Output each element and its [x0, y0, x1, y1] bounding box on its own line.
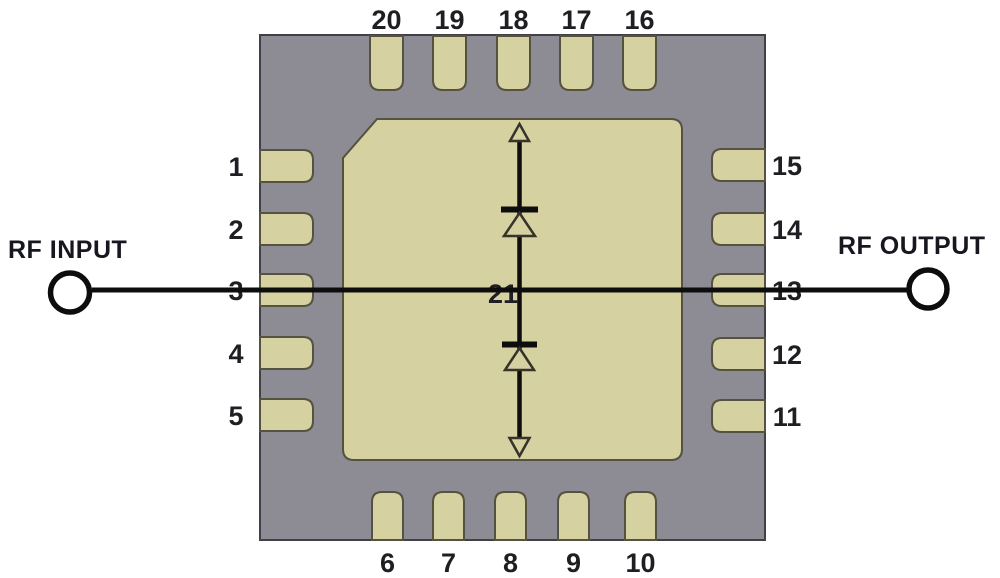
pad-top-19	[433, 36, 466, 90]
pad-top-20	[370, 36, 403, 90]
pad-bottom-7	[433, 492, 464, 540]
pad-bottom-10	[625, 492, 656, 540]
pin-label-10: 10	[625, 548, 655, 578]
pad-right-14	[712, 213, 765, 245]
rf-output-label: RF OUTPUT	[838, 232, 986, 260]
pad-bottom-6	[372, 492, 403, 540]
pad-right-15	[712, 149, 765, 181]
pin-label-9: 9	[566, 548, 581, 578]
pin-label-6: 6	[380, 548, 395, 578]
pin-label-16: 16	[624, 5, 654, 35]
pad-top-16	[623, 36, 656, 90]
pad-left-2	[260, 213, 313, 245]
pin-label-14: 14	[772, 215, 802, 245]
rf-input-label: RF INPUT	[8, 236, 127, 264]
rf-input-terminal	[51, 273, 90, 312]
diagram-canvas: 2019181716123451514131211678910 21 RF IN…	[0, 0, 1000, 578]
rf-output-terminal	[909, 270, 947, 308]
pin-label-15: 15	[772, 151, 802, 181]
pad-left-1	[260, 150, 313, 182]
pad-right-12	[712, 338, 765, 370]
pad-bottom-8	[495, 492, 526, 540]
pin-label-17: 17	[561, 5, 591, 35]
pad-bottom-9	[558, 492, 589, 540]
pad-right-11	[712, 400, 765, 432]
pin-label-5: 5	[228, 401, 243, 431]
pin-label-11: 11	[773, 402, 802, 432]
package-functional-diagram: 2019181716123451514131211678910 21 RF IN…	[0, 0, 1000, 578]
pin-label-20: 20	[371, 5, 401, 35]
pin-label-19: 19	[434, 5, 464, 35]
pad-top-17	[560, 36, 593, 90]
pin-label-2: 2	[228, 215, 243, 245]
pad-left-5	[260, 399, 313, 431]
pin-label-8: 8	[503, 548, 518, 578]
pin-label-1: 1	[228, 152, 243, 182]
pad-top-18	[497, 36, 530, 90]
paddle-pin-label: 21	[488, 279, 518, 309]
pin-label-4: 4	[228, 339, 243, 369]
pin-label-18: 18	[498, 5, 528, 35]
pad-left-4	[260, 337, 313, 369]
pin-label-7: 7	[441, 548, 456, 578]
pin-label-12: 12	[772, 340, 802, 370]
